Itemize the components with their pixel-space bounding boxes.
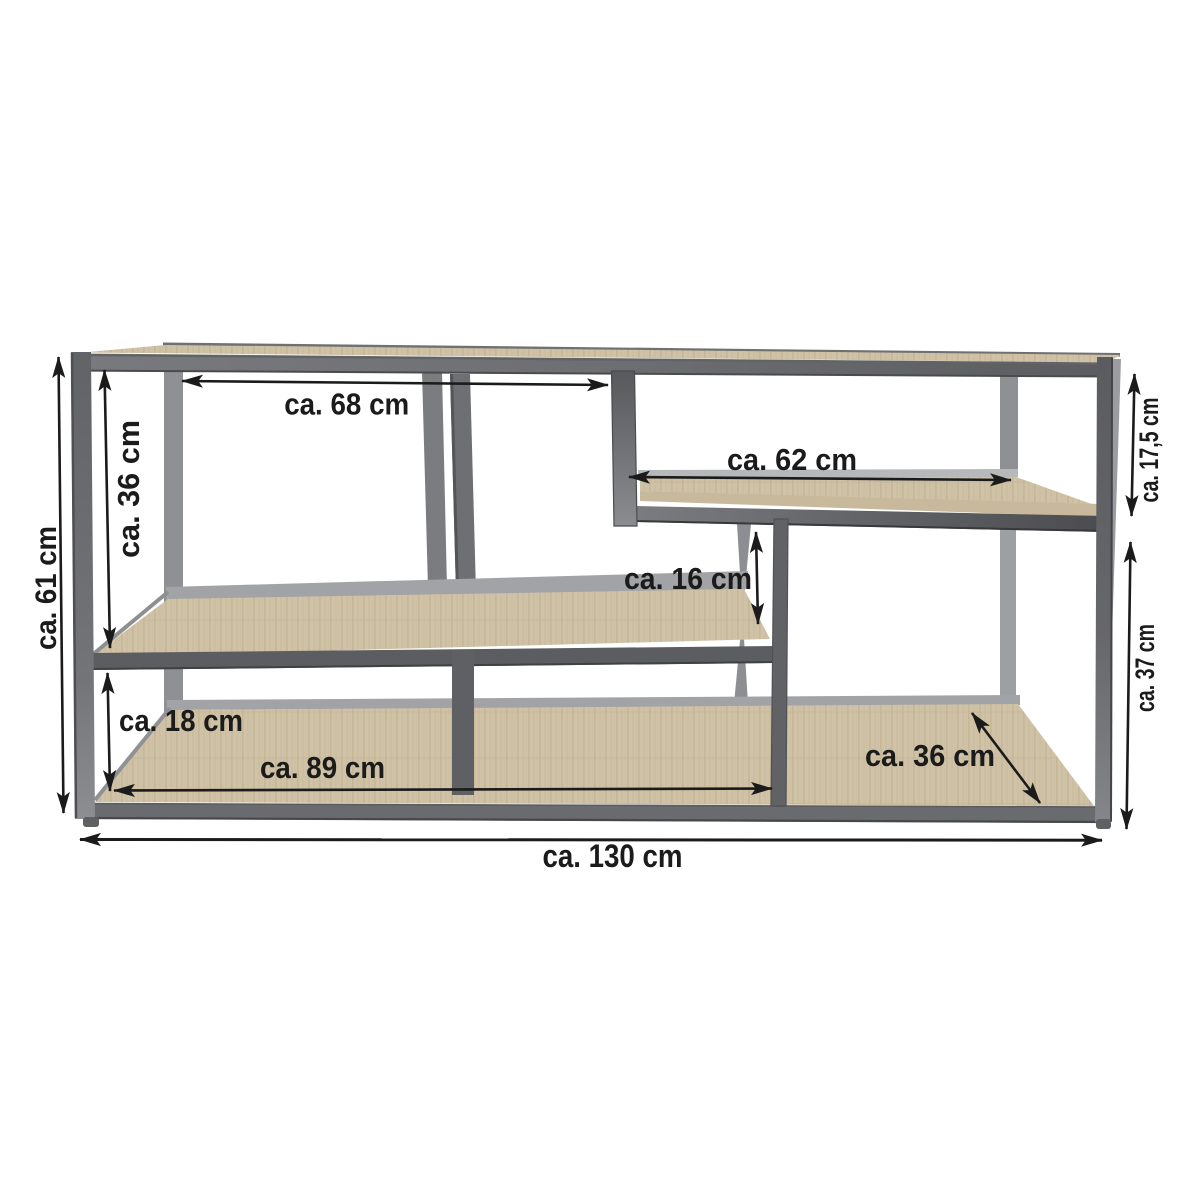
svg-text:ca. 36 cm: ca. 36 cm (865, 738, 995, 773)
svg-text:ca. 17,5 cm: ca. 17,5 cm (1134, 398, 1164, 503)
svg-text:ca. 62 cm: ca. 62 cm (727, 442, 857, 477)
svg-text:ca. 130 cm: ca. 130 cm (543, 838, 683, 874)
svg-text:ca. 61 cm: ca. 61 cm (30, 526, 63, 650)
svg-text:ca. 16 cm: ca. 16 cm (624, 561, 752, 596)
svg-text:ca. 36 cm: ca. 36 cm (111, 420, 146, 558)
svg-text:ca. 68 cm: ca. 68 cm (284, 387, 409, 422)
svg-text:ca. 89 cm: ca. 89 cm (260, 750, 385, 785)
svg-text:ca. 18 cm: ca. 18 cm (119, 703, 243, 738)
svg-text:ca. 37 cm: ca. 37 cm (1130, 624, 1160, 712)
